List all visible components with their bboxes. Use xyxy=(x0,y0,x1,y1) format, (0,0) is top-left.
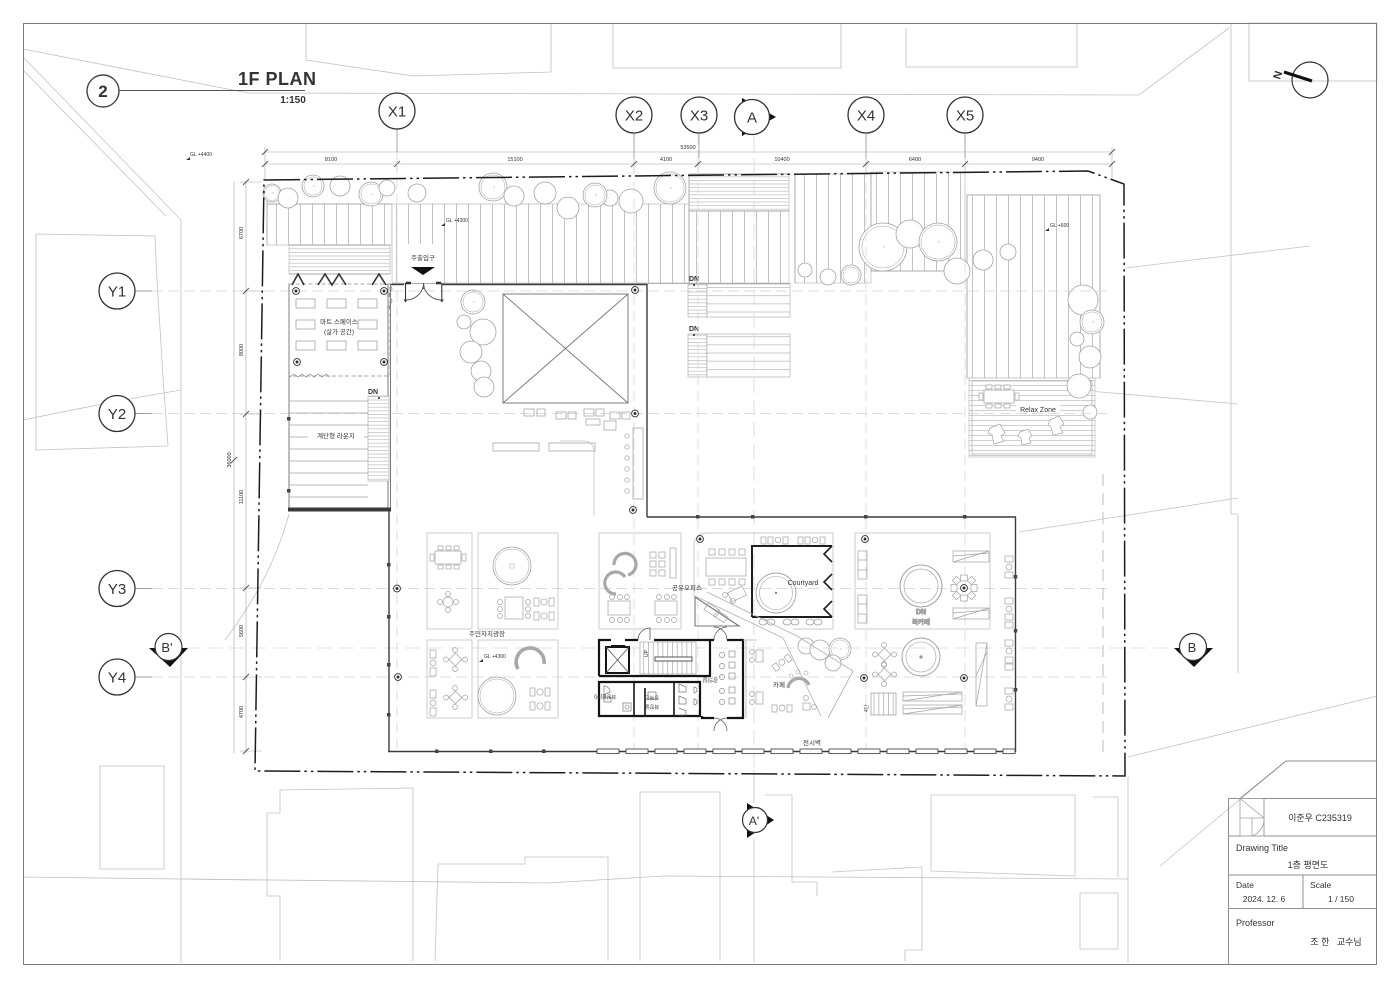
svg-text:전시벽: 전시벽 xyxy=(803,738,821,747)
svg-text:53500: 53500 xyxy=(680,145,695,151)
svg-text:2024. 12. 6: 2024. 12. 6 xyxy=(1243,894,1286,904)
svg-text:15100: 15100 xyxy=(507,157,522,163)
svg-text:GL +600: GL +600 xyxy=(1050,223,1069,229)
svg-text:조 한 교수님: 조 한 교수님 xyxy=(1310,937,1361,947)
svg-text:북카페: 북카페 xyxy=(912,617,930,626)
svg-text:화장실(여): 화장실(여) xyxy=(594,693,616,700)
svg-text:화장실: 화장실 xyxy=(645,703,659,710)
svg-text:마트 스페이스: 마트 스페이스 xyxy=(320,317,358,326)
svg-text:X2: X2 xyxy=(625,108,643,125)
svg-text:Y3: Y3 xyxy=(108,581,126,598)
svg-text:4100: 4100 xyxy=(660,157,672,163)
svg-text:4단: 4단 xyxy=(863,704,870,712)
svg-text:Y1: Y1 xyxy=(108,284,126,301)
svg-text:Date: Date xyxy=(1236,880,1254,890)
svg-text:Relax Zone: Relax Zone xyxy=(1020,407,1056,414)
svg-text:X4: X4 xyxy=(857,108,875,125)
svg-text:1F PLAN: 1F PLAN xyxy=(238,69,317,89)
svg-text:Y4: Y4 xyxy=(108,670,126,687)
svg-text:10400: 10400 xyxy=(774,157,789,163)
svg-text:A: A xyxy=(747,110,757,127)
svg-text:주민자치광장: 주민자치광장 xyxy=(469,629,505,638)
svg-text:6400: 6400 xyxy=(909,157,921,163)
svg-text:이준우 C235319: 이준우 C235319 xyxy=(1288,813,1352,823)
svg-text:X3: X3 xyxy=(690,108,708,125)
svg-text:Courtyard: Courtyard xyxy=(788,580,819,587)
svg-text:B': B' xyxy=(161,640,172,655)
svg-text:1 / 150: 1 / 150 xyxy=(1328,894,1354,904)
svg-text:(살가 공간): (살가 공간) xyxy=(324,327,354,336)
svg-text:UP: UP xyxy=(644,649,650,657)
svg-text:A': A' xyxy=(749,814,759,828)
svg-text:1:150: 1:150 xyxy=(280,95,306,106)
svg-text:Drawing Title: Drawing Title xyxy=(1236,843,1288,853)
svg-text:DN: DN xyxy=(689,326,699,333)
svg-text:DN: DN xyxy=(916,609,926,616)
svg-text:9400: 9400 xyxy=(1032,157,1044,163)
svg-text:Y2: Y2 xyxy=(108,406,126,423)
svg-text:강의실: 강의실 xyxy=(703,676,718,684)
svg-text:GL +4400: GL +4400 xyxy=(190,152,212,158)
svg-text:8000: 8000 xyxy=(239,344,245,356)
svg-text:B: B xyxy=(1188,640,1197,655)
svg-text:DN: DN xyxy=(368,389,378,396)
svg-text:8100: 8100 xyxy=(325,157,337,163)
svg-text:Professor: Professor xyxy=(1236,918,1275,928)
svg-text:6700: 6700 xyxy=(239,227,245,239)
svg-text:11100: 11100 xyxy=(239,490,245,504)
svg-text:GL +4300: GL +4300 xyxy=(446,218,468,224)
svg-text:장애인: 장애인 xyxy=(645,694,659,701)
svg-text:2: 2 xyxy=(98,82,107,101)
svg-text:DN: DN xyxy=(689,276,699,283)
svg-text:카페: 카페 xyxy=(773,680,785,689)
svg-text:계단형 라운지: 계단형 라운지 xyxy=(317,431,355,440)
svg-text:공유오피스: 공유오피스 xyxy=(672,583,702,592)
svg-text:1층 평면도: 1층 평면도 xyxy=(1288,860,1329,870)
svg-text:X1: X1 xyxy=(388,104,406,121)
svg-text:GL +4300: GL +4300 xyxy=(484,654,506,660)
svg-text:주출입구: 주출입구 xyxy=(411,253,435,262)
svg-text:X5: X5 xyxy=(956,108,974,125)
svg-text:Scale: Scale xyxy=(1310,880,1332,890)
svg-text:36000: 36000 xyxy=(227,452,233,467)
svg-text:5600: 5600 xyxy=(239,625,245,637)
svg-text:4700: 4700 xyxy=(239,706,245,718)
